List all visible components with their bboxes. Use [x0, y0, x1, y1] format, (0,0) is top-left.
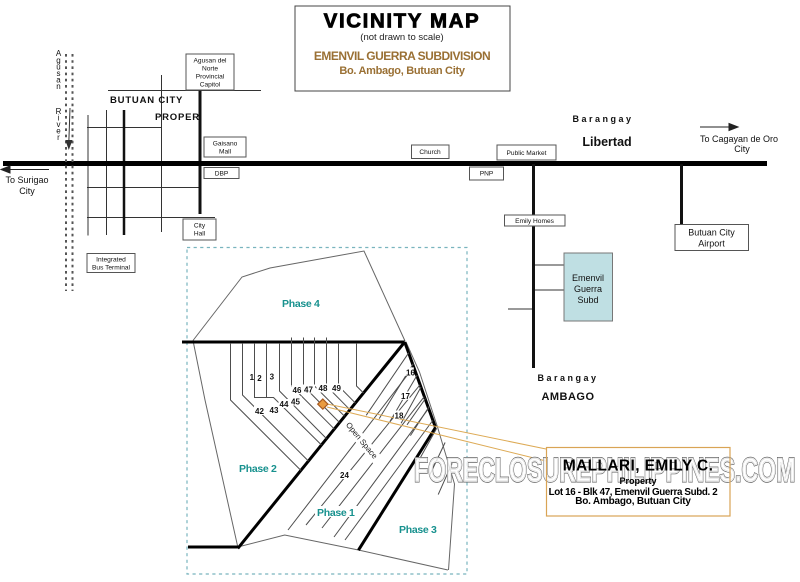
- svg-text:n: n: [56, 82, 60, 91]
- svg-text:46: 46: [293, 386, 302, 395]
- svg-text:PNP: PNP: [480, 171, 494, 178]
- svg-text:Mall: Mall: [219, 149, 232, 156]
- svg-text:Bo. Ambago, Butuan City: Bo. Ambago, Butuan City: [339, 65, 465, 77]
- svg-text:AMBAGO: AMBAGO: [541, 391, 594, 403]
- svg-text:Bus Terminal: Bus Terminal: [92, 265, 131, 272]
- svg-text:16: 16: [406, 368, 415, 377]
- svg-text:EMENVIL GUERRA SUBDIVISION: EMENVIL GUERRA SUBDIVISION: [314, 49, 490, 63]
- svg-text:City: City: [19, 186, 35, 196]
- svg-text:Barangay: Barangay: [537, 373, 598, 383]
- svg-text:Phase 2: Phase 2: [239, 463, 277, 475]
- svg-text:To Cagayan de Oro: To Cagayan de Oro: [700, 134, 778, 144]
- svg-text:Property: Property: [619, 476, 656, 486]
- svg-text:18: 18: [395, 412, 404, 421]
- svg-text:r: r: [57, 133, 60, 142]
- svg-text:MALLARI, EMILY C.: MALLARI, EMILY C.: [563, 458, 714, 475]
- svg-text:Norte: Norte: [202, 66, 218, 73]
- svg-text:DBP: DBP: [215, 171, 229, 178]
- svg-text:Libertad: Libertad: [582, 135, 631, 149]
- svg-text:42: 42: [255, 407, 264, 416]
- svg-text:Provincial: Provincial: [196, 74, 225, 81]
- svg-text:48: 48: [319, 384, 328, 393]
- svg-text:Phase 4: Phase 4: [282, 298, 320, 310]
- svg-text:City: City: [194, 223, 206, 230]
- svg-text:Bo. Ambago, Butuan City: Bo. Ambago, Butuan City: [575, 496, 691, 507]
- svg-text:Agusan del: Agusan del: [194, 58, 228, 65]
- svg-text:Hall: Hall: [194, 231, 206, 238]
- svg-text:Phase 1: Phase 1: [317, 507, 355, 519]
- svg-text:VICINITY MAP: VICINITY MAP: [324, 10, 481, 33]
- svg-text:47: 47: [304, 385, 313, 394]
- svg-text:PROPER: PROPER: [155, 112, 200, 123]
- svg-text:Gaisano: Gaisano: [213, 141, 238, 148]
- svg-text:3: 3: [270, 372, 275, 381]
- svg-text:Barangay: Barangay: [572, 114, 633, 124]
- svg-text:Subd: Subd: [577, 295, 598, 305]
- svg-text:45: 45: [291, 398, 300, 407]
- svg-text:2: 2: [257, 374, 262, 383]
- svg-text:To Surigao: To Surigao: [5, 175, 48, 185]
- svg-text:Guerra: Guerra: [574, 284, 602, 294]
- svg-text:Capitol: Capitol: [200, 82, 221, 89]
- svg-text:1: 1: [250, 373, 255, 382]
- svg-text:44: 44: [280, 400, 289, 409]
- svg-text:Phase 3: Phase 3: [399, 524, 437, 536]
- svg-text:Emenvil: Emenvil: [572, 273, 604, 283]
- svg-text:(not drawn to scale): (not drawn to scale): [360, 32, 443, 43]
- svg-text:Butuan City: Butuan City: [688, 228, 735, 238]
- svg-text:Emily Homes: Emily Homes: [515, 218, 555, 225]
- svg-text:Public Market: Public Market: [507, 150, 547, 157]
- svg-text:Airport: Airport: [698, 239, 725, 249]
- svg-text:43: 43: [270, 406, 279, 415]
- svg-text:Church: Church: [419, 149, 441, 156]
- svg-text:City: City: [734, 144, 750, 154]
- svg-text:49: 49: [332, 384, 341, 393]
- svg-text:Integrated: Integrated: [96, 257, 126, 264]
- svg-text:17: 17: [401, 392, 410, 401]
- svg-text:BUTUAN CITY: BUTUAN CITY: [110, 95, 183, 106]
- svg-text:24: 24: [340, 471, 349, 480]
